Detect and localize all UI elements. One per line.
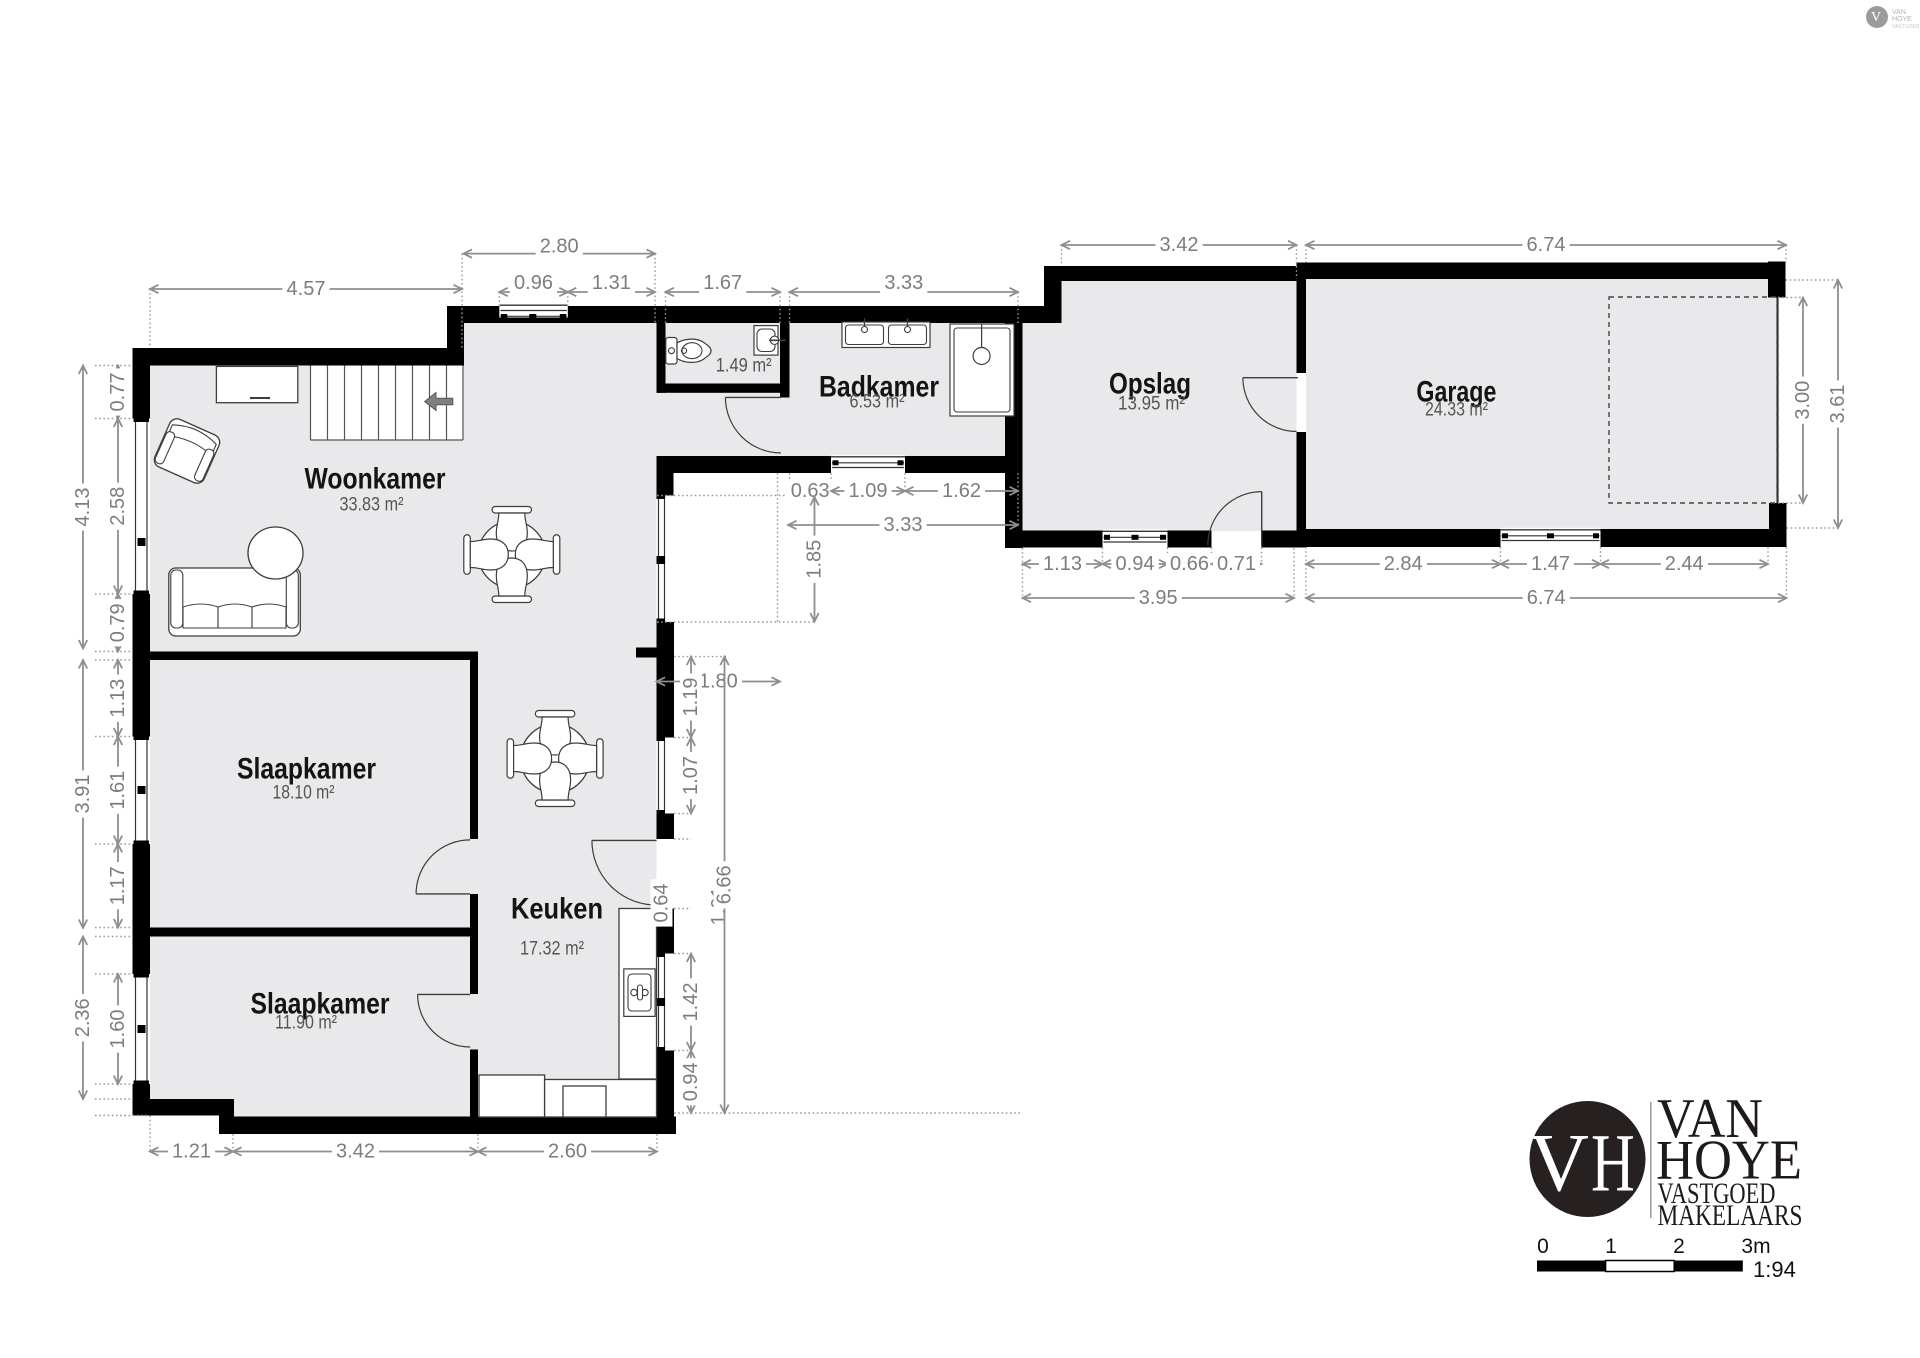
svg-text:1.49 m²: 1.49 m²: [716, 356, 772, 377]
svg-text:2.80: 2.80: [540, 236, 579, 258]
svg-text:18.10 m²: 18.10 m²: [273, 783, 335, 804]
svg-text:Slaapkamer: Slaapkamer: [237, 753, 376, 786]
svg-text:1.60: 1.60: [107, 1010, 129, 1049]
svg-text:33.83 m²: 33.83 m²: [340, 495, 404, 516]
svg-text:3.91: 3.91: [72, 775, 94, 814]
svg-text:0.79: 0.79: [107, 603, 129, 642]
svg-text:1.17: 1.17: [107, 866, 129, 905]
svg-text:0.94: 0.94: [680, 1062, 702, 1101]
svg-text:3.61: 3.61: [1827, 385, 1849, 424]
svg-text:V: V: [1871, 10, 1881, 25]
svg-text:Keuken: Keuken: [511, 893, 603, 926]
svg-text:1.21: 1.21: [172, 1141, 211, 1163]
svg-text:H: H: [1591, 1116, 1635, 1209]
svg-text:0.63: 0.63: [791, 480, 830, 502]
svg-text:V: V: [1529, 1117, 1589, 1209]
svg-text:4.57: 4.57: [287, 278, 326, 300]
svg-text:MAKELAARS: MAKELAARS: [1658, 1199, 1803, 1232]
svg-text:1.80: 1.80: [699, 671, 738, 693]
svg-text:1.61: 1.61: [107, 771, 129, 810]
svg-text:0.66: 0.66: [1170, 553, 1209, 575]
svg-text:24.33 m²: 24.33 m²: [1425, 400, 1488, 421]
svg-text:6.66: 6.66: [714, 865, 736, 904]
svg-text:3.95: 3.95: [1139, 587, 1178, 609]
svg-text:0.64: 0.64: [651, 884, 673, 923]
svg-text:17.32 m²: 17.32 m²: [520, 939, 584, 960]
svg-text:0.96: 0.96: [514, 272, 553, 294]
svg-text:VASTGOED: VASTGOED: [1892, 24, 1920, 30]
svg-text:0.77: 0.77: [107, 373, 129, 412]
svg-text:6.53 m²: 6.53 m²: [850, 392, 905, 413]
svg-text:2.44: 2.44: [1665, 553, 1704, 575]
svg-text:2.36: 2.36: [72, 998, 94, 1037]
svg-text:1.47: 1.47: [1531, 553, 1570, 575]
svg-text:3.42: 3.42: [1160, 234, 1199, 256]
svg-text:HOYE: HOYE: [1892, 16, 1912, 23]
svg-text:1.85: 1.85: [804, 540, 826, 579]
svg-text:VAN: VAN: [1892, 9, 1906, 16]
svg-text:2.58: 2.58: [107, 487, 129, 526]
svg-text:11.90 m²: 11.90 m²: [275, 1013, 337, 1034]
svg-text:1.13: 1.13: [1043, 553, 1082, 575]
svg-text:0.71: 0.71: [1217, 553, 1256, 575]
svg-text:2.60: 2.60: [548, 1141, 587, 1163]
svg-text:0.94: 0.94: [1116, 553, 1155, 575]
svg-text:3.42: 3.42: [336, 1141, 375, 1163]
svg-text:4.13: 4.13: [72, 488, 94, 527]
svg-text:2.84: 2.84: [1384, 553, 1423, 575]
svg-text:1:94: 1:94: [1753, 1257, 1796, 1282]
svg-text:6.74: 6.74: [1527, 234, 1566, 256]
svg-text:1.42: 1.42: [680, 983, 702, 1022]
svg-text:3.33: 3.33: [884, 514, 923, 536]
svg-text:1.19: 1.19: [680, 678, 702, 717]
svg-text:1.67: 1.67: [703, 272, 742, 294]
svg-text:1.13: 1.13: [107, 679, 129, 718]
svg-text:Woonkamer: Woonkamer: [305, 463, 446, 496]
svg-text:6.74: 6.74: [1527, 587, 1566, 609]
svg-text:0: 0: [1537, 1235, 1549, 1258]
svg-text:3.33: 3.33: [884, 272, 923, 294]
svg-text:1.31: 1.31: [592, 272, 631, 294]
svg-text:3m: 3m: [1741, 1235, 1770, 1258]
svg-text:1.07: 1.07: [680, 756, 702, 795]
svg-text:1.62: 1.62: [942, 480, 981, 502]
svg-text:13.95 m²: 13.95 m²: [1118, 394, 1185, 415]
svg-text:1: 1: [1605, 1235, 1617, 1258]
svg-text:3.00: 3.00: [1792, 381, 1814, 420]
svg-text:2: 2: [1673, 1235, 1685, 1258]
svg-text:1.09: 1.09: [849, 480, 888, 502]
